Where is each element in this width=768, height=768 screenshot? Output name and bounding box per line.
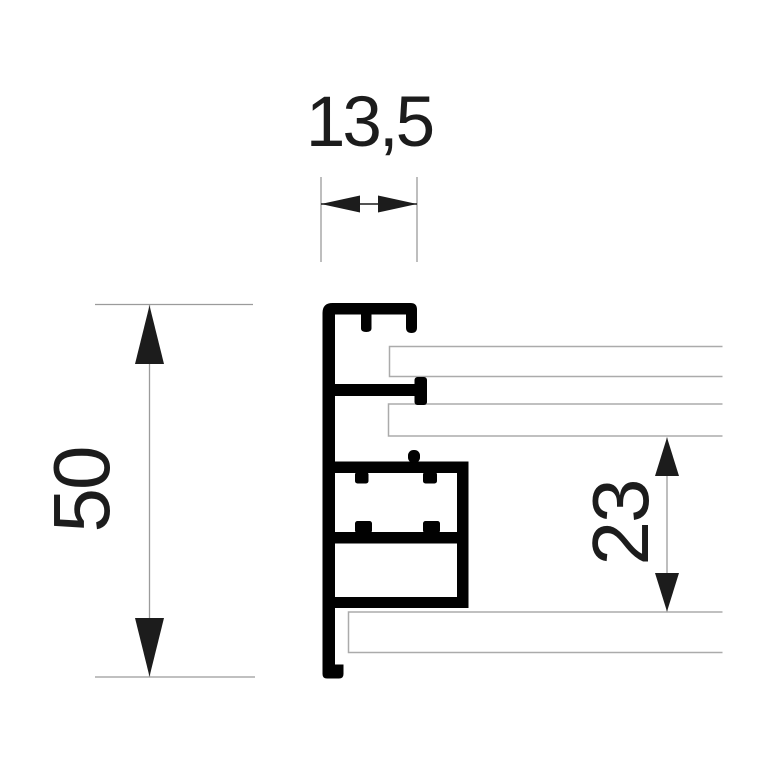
dimension-label-top-width: 13,5 <box>269 85 469 160</box>
dimension-label-right-height: 23 <box>576 423 666 623</box>
glass-panel-upper <box>390 347 723 377</box>
glass-panel-middle <box>389 404 723 436</box>
profile-tab-top-right <box>423 472 437 484</box>
profile-tab-top-left <box>355 472 369 484</box>
profile-tab-bottom-right <box>423 521 440 533</box>
arrowhead-down <box>135 618 164 677</box>
glass-panel-lower <box>349 612 723 653</box>
profile-box-chamber-lower <box>335 544 457 598</box>
technical-drawing-canvas: 13,5 50 23 <box>0 0 768 768</box>
profile-box-top-nub <box>408 450 420 463</box>
arrowhead-left <box>321 196 360 213</box>
arrowhead-right <box>378 196 417 213</box>
dimension-label-left-height: 50 <box>37 390 127 590</box>
profile-middle-arm <box>335 384 416 396</box>
profile-tab-bottom-left <box>355 521 372 533</box>
arrowhead-up <box>135 306 164 365</box>
dimension-top-width <box>321 177 417 262</box>
profile-middle-arm-cap <box>415 377 428 405</box>
